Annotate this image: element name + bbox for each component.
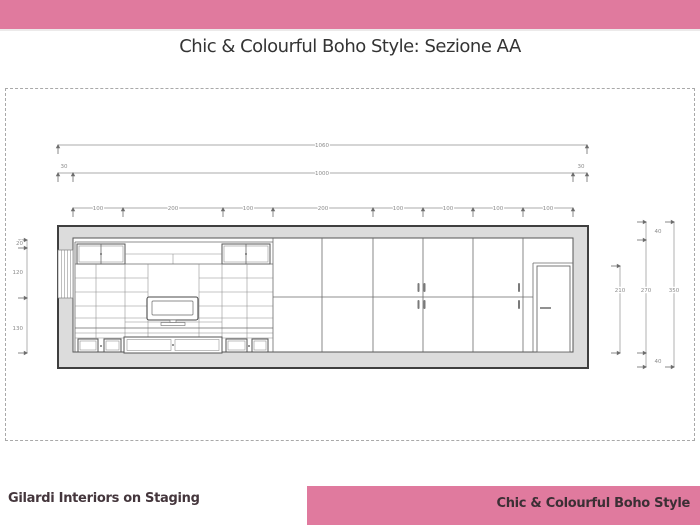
footer-bar: Chic & Colourful Boho Style: [307, 486, 700, 525]
dim-label-sill-height: 130: [13, 326, 24, 332]
dim-label-ceiling-slab: 40: [655, 229, 662, 235]
base-cabinets: [78, 337, 268, 353]
dim-label-seg-1: 100: [93, 206, 104, 212]
door: [533, 263, 573, 352]
window: [58, 250, 73, 298]
slide: { "page": { "accent_pink": "#e07a9e", "b…: [0, 0, 700, 525]
dim-label-seg-8: 100: [543, 206, 554, 212]
dim-label-window-height: 120: [13, 270, 24, 276]
dim-label-floor-slab: 40: [655, 359, 662, 365]
dim-label-interior-width: 1000: [315, 171, 329, 177]
dim-label-seg-7: 100: [493, 206, 504, 212]
section-drawing-aa: 1060 30 1000 30 100 200 100 200 100 100 …: [0, 0, 700, 460]
dim-label-wall-left: 30: [61, 164, 68, 170]
footer-project-title: Chic & Colourful Boho Style: [496, 496, 690, 511]
dim-label-seg-3: 100: [243, 206, 254, 212]
credit-text: Gilardi Interiors on Staging: [8, 491, 200, 506]
dim-label-interior-height: 270: [641, 288, 652, 294]
dim-label-total-height: 350: [669, 288, 680, 294]
dim-label-seg-4: 200: [318, 206, 329, 212]
dim-label-seg-6: 100: [443, 206, 454, 212]
dim-label-total-width: 1060: [315, 143, 329, 149]
dim-label-seg-5: 100: [393, 206, 404, 212]
dim-label-left-top: 20: [16, 241, 23, 247]
dim-label-door-height: 210: [615, 288, 626, 294]
dim-label-seg-2: 200: [168, 206, 179, 212]
dim-label-wall-right: 30: [578, 164, 585, 170]
